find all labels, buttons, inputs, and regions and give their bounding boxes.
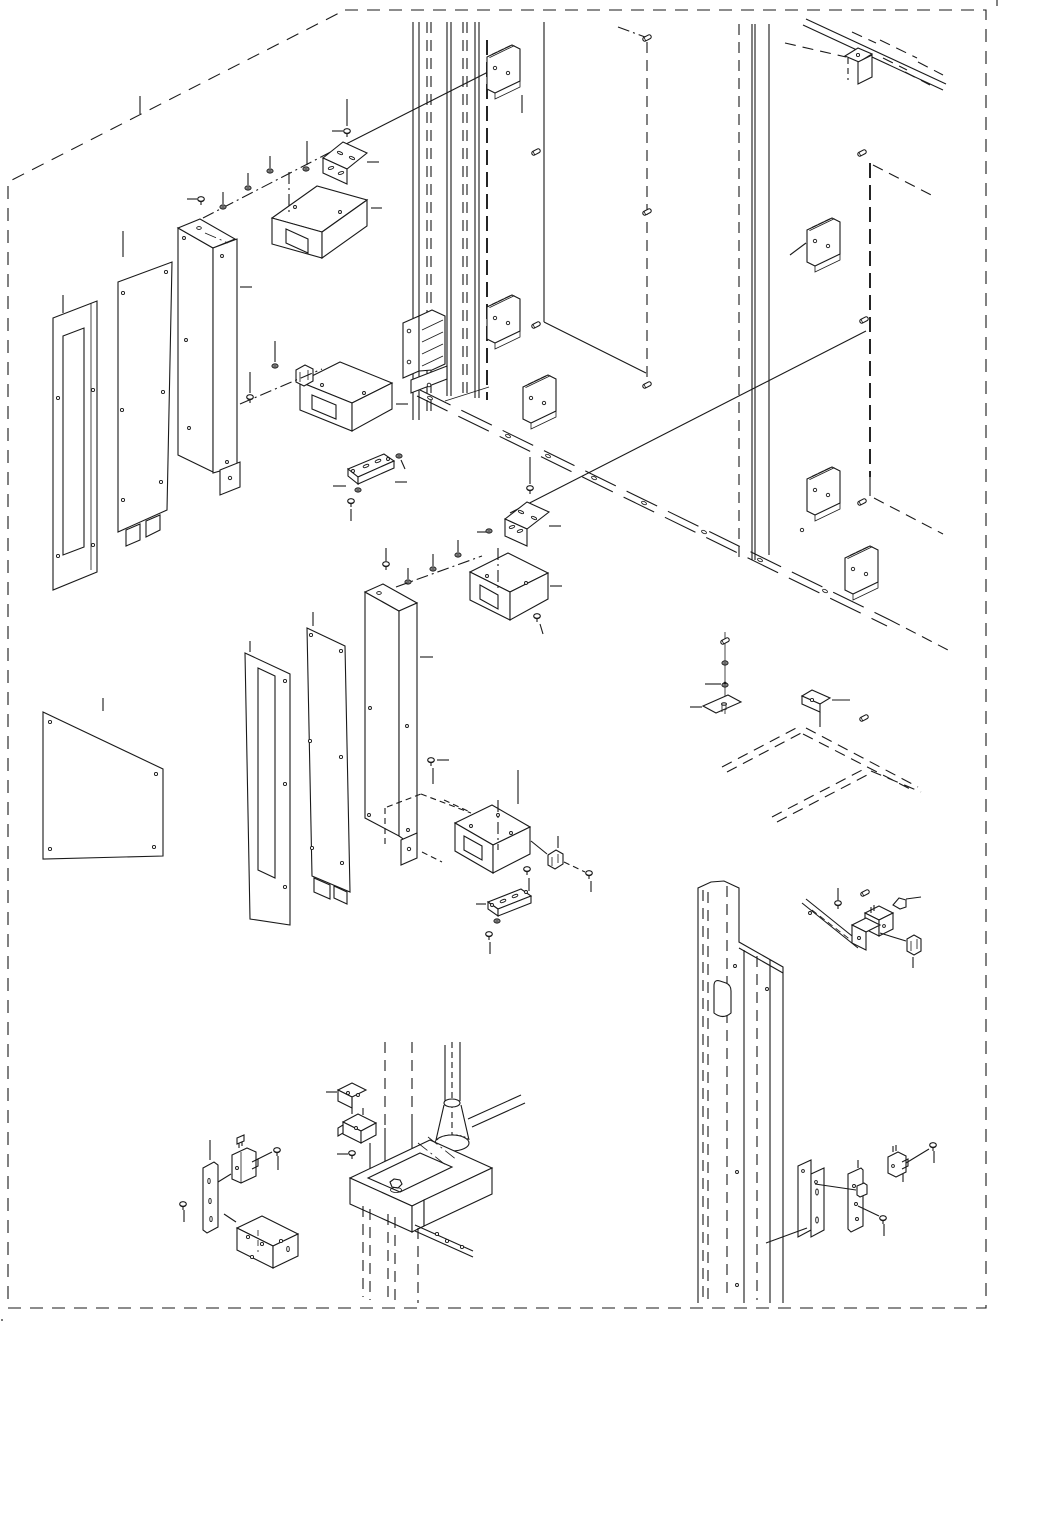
standoff-pin: [857, 498, 867, 506]
screw: [930, 1143, 937, 1151]
din-rail-plate: [487, 45, 520, 99]
l-angle-bracket: [326, 1083, 366, 1114]
leader-line: [790, 243, 806, 255]
cable-clamp: [802, 690, 850, 727]
u-channel-bracket: [300, 362, 408, 431]
plain-side-panel: [118, 231, 172, 546]
fastener-row: [383, 540, 482, 587]
standoff-pin: [642, 34, 652, 42]
support-column: [178, 219, 252, 495]
standoff-pin: [857, 149, 867, 157]
base-leg-assembly: [326, 1042, 525, 1303]
flat-link-bar: [333, 454, 407, 521]
screw: [396, 454, 402, 458]
l-angle-bracket: [766, 1160, 824, 1243]
u-channel-bracket: [272, 172, 382, 258]
micro-switch: [232, 1135, 258, 1183]
artifact-dot: [1, 1319, 3, 1321]
right-frame-rails: [739, 24, 769, 563]
din-rail-plate: [523, 375, 556, 429]
flat-link-bar: [476, 889, 531, 954]
support-column: [365, 584, 449, 865]
u-channel-bracket: [455, 770, 530, 891]
screw: [180, 1202, 187, 1210]
standoff-pin: [642, 381, 652, 389]
screw: [835, 901, 842, 909]
screw: [349, 1151, 356, 1159]
ghost-right-edge: [857, 149, 943, 722]
slotted-side-panel: [245, 641, 290, 925]
din-rail-plate: [845, 546, 878, 600]
screw: [880, 1216, 887, 1224]
washer: [272, 364, 278, 368]
center-assembly: [245, 457, 592, 954]
hinge-latch-assembly: [403, 310, 447, 393]
cable-clamp: [880, 933, 921, 968]
standoff-pin: [531, 321, 541, 329]
fastener-row: [187, 156, 273, 209]
din-rail-plate: [807, 467, 840, 521]
micro-switch: [888, 1145, 908, 1182]
right-channel-column: [698, 881, 783, 1303]
switch-clamp-bracket: [338, 1108, 376, 1143]
screw: [274, 1148, 281, 1156]
slotted-side-panel: [53, 295, 97, 590]
upper-left-assembly: [53, 99, 382, 590]
screw: [344, 129, 351, 137]
din-rail-plate: [487, 295, 520, 349]
standoff-pin: [859, 316, 869, 324]
right-mid-switch-assembly: [802, 888, 921, 968]
plain-side-panel: [307, 612, 350, 904]
u-channel-bracket: [470, 548, 562, 634]
back-panel: [43, 698, 163, 859]
standoff-pin: [859, 714, 869, 722]
z-mounting-bracket: [224, 1214, 298, 1268]
screw: [303, 167, 309, 171]
cable-clamp: [296, 365, 313, 386]
screw-stack-and-plate: [690, 632, 741, 714]
standoff-pin: [642, 208, 652, 216]
standoff-pin: [860, 889, 870, 897]
l-angle-bracket: [477, 457, 561, 546]
l-angle-bracket: [303, 99, 379, 184]
bottom-left-switch-assembly: [180, 1135, 298, 1268]
screw: [247, 395, 254, 403]
exploded-parts-diagram: [0, 0, 1038, 1531]
cable-clamp: [531, 836, 592, 892]
standoff-pin: [531, 148, 541, 156]
dashed-page-border: [1, 0, 997, 1321]
din-rail-plate: [807, 218, 840, 272]
mid-left-assembly: [240, 341, 408, 521]
ghost-floor-outline: [722, 726, 921, 822]
switch-mounting-plate: [203, 1140, 218, 1233]
top-corner-bracket: [845, 48, 872, 84]
ghost-panel-outline: [531, 22, 652, 389]
diagram-page: [0, 0, 1038, 1531]
bottom-right-switch-assembly: [766, 1143, 936, 1243]
